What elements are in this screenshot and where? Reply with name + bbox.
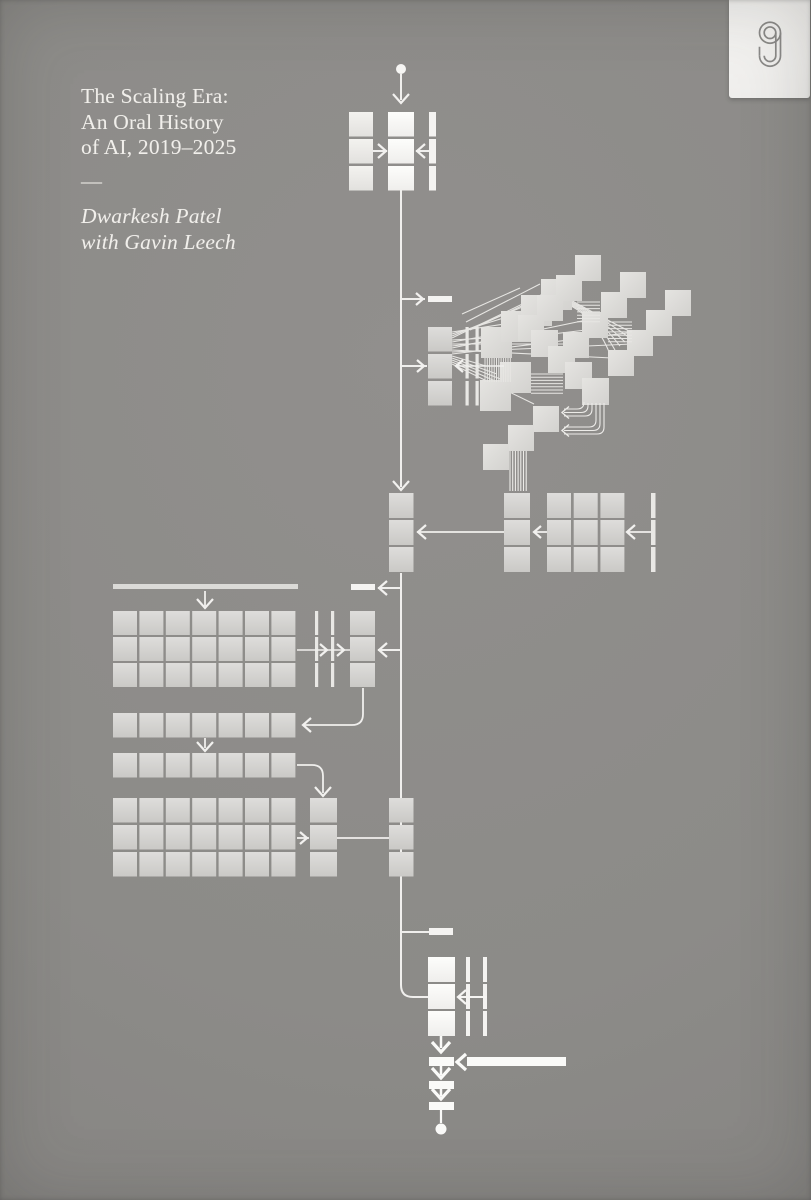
title-line: The Scaling Era: — [81, 84, 237, 110]
publisher-tab — [729, 0, 810, 98]
title-line: of AI, 2019–2025 — [81, 135, 237, 161]
book-cover: The Scaling Era: An Oral History of AI, … — [0, 0, 811, 1200]
author-line: with Gavin Leech — [81, 230, 237, 256]
title-block: The Scaling Era: An Oral History of AI, … — [81, 84, 237, 255]
author-line: Dwarkesh Patel — [81, 204, 237, 230]
stripe-press-logo-icon — [749, 16, 791, 80]
output-block-group — [428, 957, 487, 1036]
start-node — [393, 64, 409, 103]
title-divider: — — [81, 169, 237, 195]
author-block: Dwarkesh Patel with Gavin Leech — [81, 204, 237, 255]
end-chain — [429, 1036, 566, 1135]
mid-block-group — [389, 493, 656, 572]
staircase-chains — [480, 255, 691, 470]
top-block-group — [349, 112, 436, 191]
grid-stack-group — [113, 584, 414, 877]
title-line: An Oral History — [81, 110, 237, 136]
